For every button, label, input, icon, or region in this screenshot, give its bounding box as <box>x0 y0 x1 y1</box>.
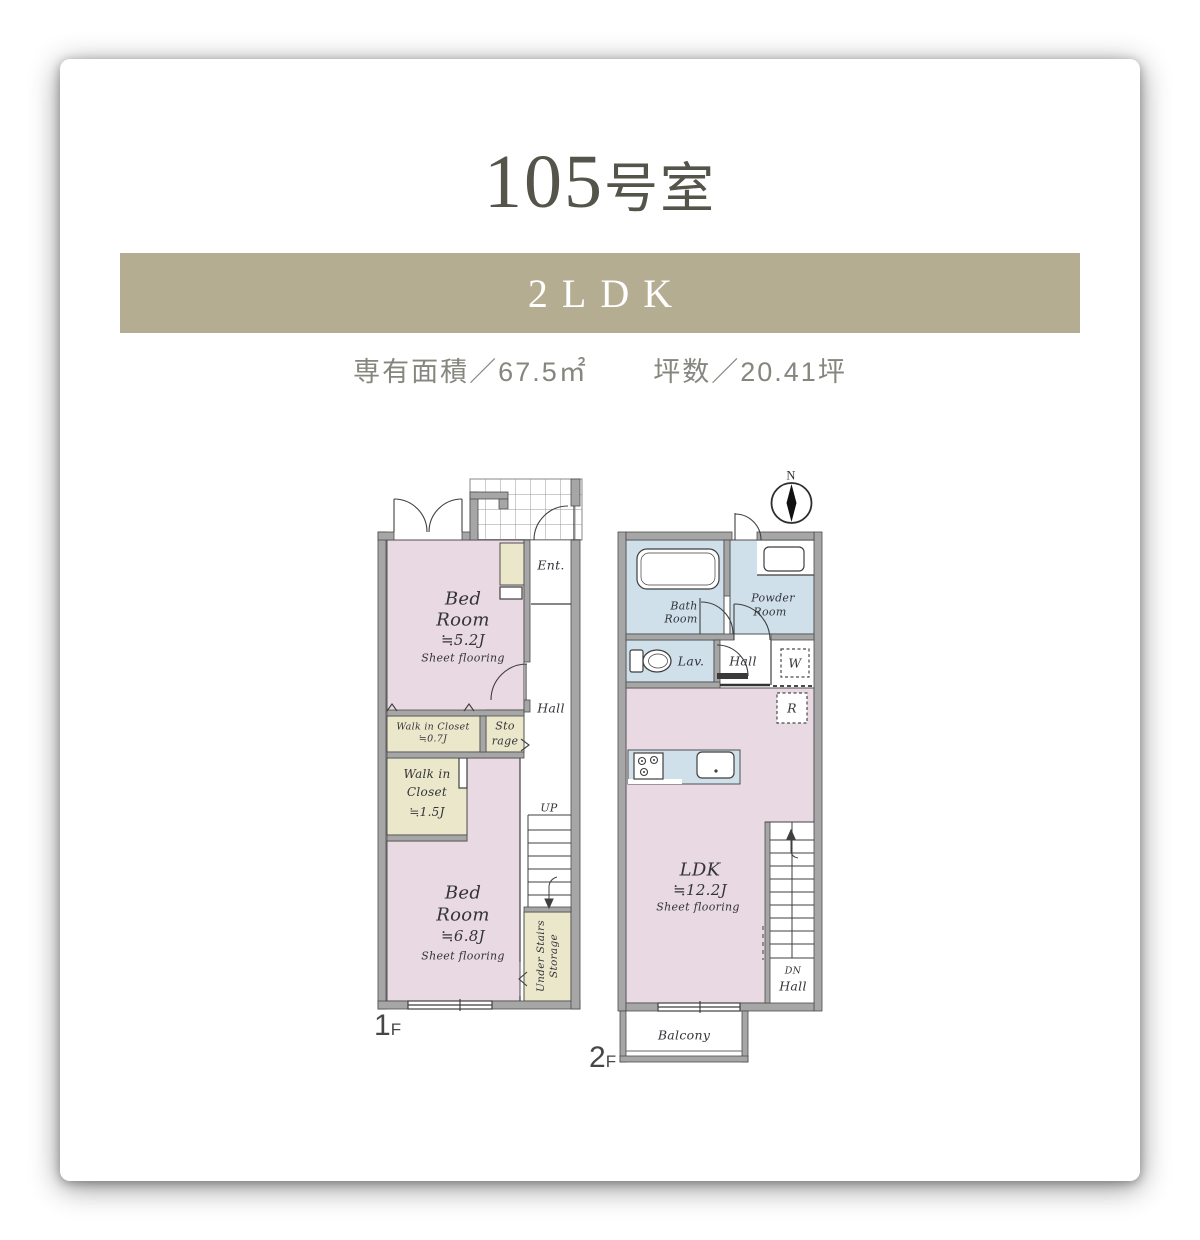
entrance-cabinet <box>500 587 522 599</box>
bedroom2-label: Bed <box>445 883 481 904</box>
bedroom2-label: Room <box>436 905 490 926</box>
washer-label: W <box>788 656 801 671</box>
storage-label: Sto <box>495 720 514 733</box>
wic-large-size: ≒1.5J <box>409 805 444 819</box>
entrance-label: Ent. <box>537 558 564 573</box>
wic-large-label: Closet <box>407 785 447 799</box>
under-stairs-line2: Storage <box>548 920 561 992</box>
dn-hall-label: Hall <box>779 979 807 994</box>
compass-icon <box>772 483 812 523</box>
wic-door-recess <box>459 758 467 788</box>
stairs-up <box>528 815 571 908</box>
window-2f <box>658 1001 740 1013</box>
bedroom1-size: ≒5.2J <box>441 631 485 649</box>
stairs-down-label: DN <box>785 966 802 977</box>
bedroom1-label: Room <box>436 610 490 631</box>
hall-door-leaf <box>717 673 748 679</box>
wic-large-label: Walk in <box>403 767 450 781</box>
wic-small-label: Walk in Closet <box>396 722 469 733</box>
bedroom2-flooring: Sheet flooring <box>421 950 505 963</box>
bedroom1-flooring: Sheet flooring <box>421 652 505 665</box>
ldk-flooring: Sheet flooring <box>656 901 740 914</box>
powder-sink-icon <box>764 547 804 571</box>
ldk-label: LDK <box>680 860 721 881</box>
storage-label: rage <box>492 735 519 748</box>
toilet-icon <box>630 650 671 672</box>
window-1f <box>408 999 492 1011</box>
stairs-up-label: UP <box>540 802 557 815</box>
entrance-porch-hatch <box>470 479 582 540</box>
hall-1f-label: Hall <box>537 701 565 716</box>
bedroom1-label: Bed <box>445 589 481 610</box>
compass-north-label: N <box>786 469 795 484</box>
under-stairs-line1: Under Stairs <box>535 920 548 992</box>
floor-label-1f: 1F <box>374 1011 401 1041</box>
hall-2f-label: Hall <box>729 654 757 669</box>
kitchen-sink-icon <box>697 752 734 778</box>
wic-small-size: ≒0.7J <box>419 734 447 745</box>
bathtub-icon <box>637 549 719 589</box>
floor-label-2f: 2F <box>589 1043 616 1073</box>
under-stairs-storage-label: Under Stairs Storage <box>535 920 561 992</box>
powder-room-label: Room <box>753 606 786 619</box>
page: 105号室 2LDK 専有面積／67.5㎡ 坪数／20.41坪 <box>0 0 1200 1240</box>
ldk-size: ≒12.2J <box>673 881 727 899</box>
kitchen-counter <box>628 750 740 784</box>
lavatory-label: Lav. <box>678 654 705 669</box>
balcony-label: Balcony <box>658 1028 710 1043</box>
fridge-label: R <box>787 701 797 716</box>
bathroom-label: Room <box>664 613 697 626</box>
powder-room-label: Powder <box>751 592 795 605</box>
bathroom-label: Bath <box>670 600 697 613</box>
bedroom2-size: ≒6.8J <box>441 927 485 945</box>
stove-icon <box>634 753 663 779</box>
shoe-cabinet <box>500 543 524 585</box>
